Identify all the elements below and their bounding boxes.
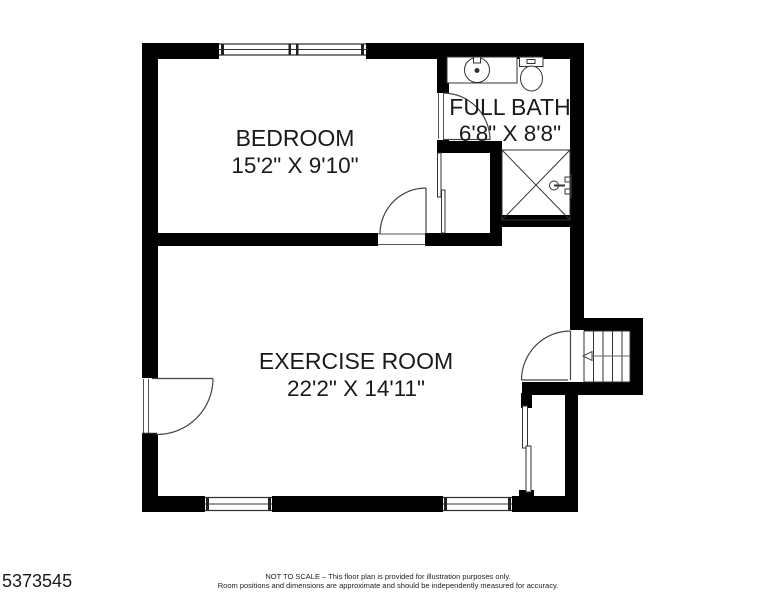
shower-stall bbox=[502, 150, 571, 220]
door-swing-arc bbox=[522, 331, 571, 380]
exercise-room-label: EXERCISE ROOM bbox=[259, 348, 453, 374]
wall-right-lower bbox=[565, 382, 578, 512]
disclaimer-line-2: Room positions and dimensions are approx… bbox=[0, 581, 776, 590]
railing-segment bbox=[526, 446, 531, 492]
exercise-window-left bbox=[205, 496, 272, 512]
toilet-flush-button bbox=[527, 60, 535, 64]
stairs-door bbox=[522, 331, 571, 380]
bedroom-window bbox=[219, 43, 366, 59]
sliding-panel bbox=[438, 153, 442, 197]
window-opening bbox=[219, 43, 366, 59]
door-swing-arc bbox=[380, 188, 426, 234]
wall-shower-connector bbox=[490, 215, 502, 246]
disclaimer-line-1: NOT TO SCALE – This floor plan is provid… bbox=[0, 572, 776, 581]
wall-stairs-bottom bbox=[522, 382, 643, 395]
closet-sliding-door bbox=[438, 153, 446, 233]
bedroom-door bbox=[380, 188, 426, 234]
railing-partition bbox=[523, 406, 532, 492]
toilet-bowl bbox=[521, 66, 543, 91]
toilet-icon bbox=[520, 57, 544, 91]
sink-faucet bbox=[474, 57, 481, 63]
window-mullion bbox=[444, 498, 447, 511]
staircase bbox=[583, 331, 630, 382]
exercise-left-door-gap bbox=[142, 378, 158, 434]
window-mullion bbox=[361, 44, 364, 55]
exercise-room-dimensions: 22'2" X 14'11" bbox=[287, 376, 425, 401]
window-mullion bbox=[221, 44, 224, 55]
exercise-left-door bbox=[152, 379, 213, 435]
wall-right-upper bbox=[570, 43, 584, 330]
window-mullion bbox=[296, 44, 299, 55]
floor-plan-page: BEDROOM 15'2" X 9'10" FULL BATH 6'8" X 8… bbox=[0, 0, 776, 600]
bedroom-dimensions: 15'2" X 9'10" bbox=[231, 153, 358, 178]
bath-label: FULL BATH bbox=[449, 94, 570, 120]
exercise-window-right bbox=[443, 496, 512, 512]
bath-dimensions: 6'8" X 8'8" bbox=[459, 121, 561, 146]
shower-valve-icon bbox=[550, 174, 572, 198]
sink-drain bbox=[475, 69, 479, 73]
railing-cap-bottom bbox=[519, 490, 534, 512]
window-mullion bbox=[289, 44, 292, 55]
window-mullion bbox=[508, 498, 511, 511]
sliding-panel bbox=[442, 190, 446, 233]
railing-segment bbox=[523, 406, 528, 448]
bedroom-label: BEDROOM bbox=[236, 125, 355, 151]
wall-shower-west bbox=[490, 145, 502, 227]
wall-bedroom-south bbox=[142, 233, 502, 246]
window-mullion bbox=[206, 498, 209, 511]
floor-plan-drawing: BEDROOM 15'2" X 9'10" FULL BATH 6'8" X 8… bbox=[0, 0, 776, 600]
wall-left bbox=[142, 43, 158, 512]
door-swing-arc bbox=[157, 379, 213, 435]
window-mullion bbox=[268, 498, 271, 511]
sink-icon bbox=[447, 57, 517, 83]
disclaimer: NOT TO SCALE – This floor plan is provid… bbox=[0, 572, 776, 590]
